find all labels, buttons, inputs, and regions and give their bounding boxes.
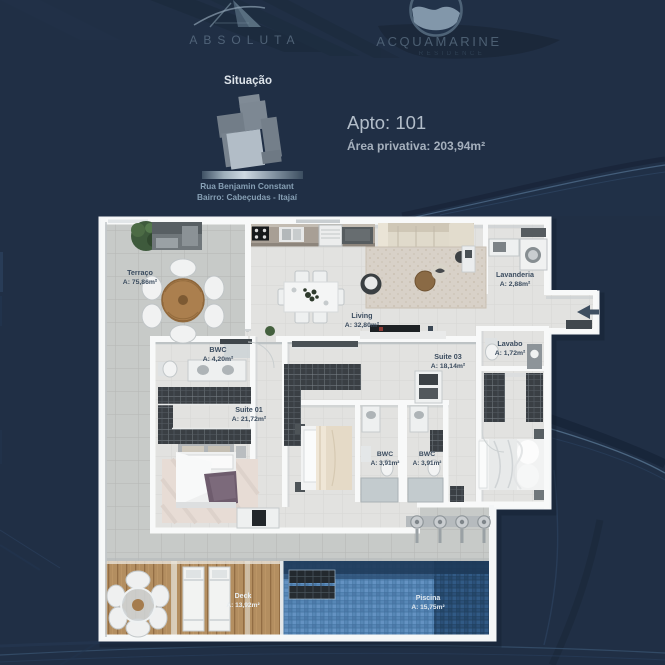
svg-text:A: 1,72m²: A: 1,72m²	[495, 350, 526, 357]
svg-text:Lavabo: Lavabo	[497, 339, 523, 348]
svg-text:Suite 01: Suite 01	[235, 405, 263, 414]
svg-text:Rua Benjamin Constant: Rua Benjamin Constant	[200, 181, 294, 191]
svg-text:Terraço: Terraço	[127, 268, 153, 277]
svg-text:A: 21,72m²: A: 21,72m²	[232, 416, 267, 423]
svg-text:Situação: Situação	[224, 75, 272, 87]
svg-text:RESIDENCE: RESIDENCE	[419, 51, 486, 57]
svg-text:Apto: 101: Apto: 101	[347, 112, 426, 133]
svg-text:A: 18,14m²: A: 18,14m²	[431, 363, 466, 370]
svg-text:Suite 03: Suite 03	[434, 352, 462, 361]
svg-text:ABSOLUTA: ABSOLUTA	[189, 33, 300, 47]
svg-text:Piscina: Piscina	[416, 595, 441, 602]
svg-text:ACQUAMARINE: ACQUAMARINE	[376, 34, 501, 49]
svg-text:Deck: Deck	[235, 593, 252, 600]
svg-text:Living: Living	[351, 311, 372, 320]
svg-text:Bairro: Cabeçudas - Itajaí: Bairro: Cabeçudas - Itajaí	[197, 192, 298, 202]
svg-text:BWC: BWC	[377, 451, 393, 458]
svg-text:A: 4,20m²: A: 4,20m²	[203, 356, 234, 363]
svg-text:Área privativa: 203,94m²: Área privativa: 203,94m²	[347, 138, 485, 153]
svg-text:A: 3,91m²: A: 3,91m²	[371, 460, 400, 467]
svg-text:A: 13,92m²: A: 13,92m²	[226, 602, 260, 609]
svg-text:Lavanderia: Lavanderia	[496, 270, 535, 279]
svg-text:A: 3,91m²: A: 3,91m²	[413, 460, 442, 467]
svg-text:BWC: BWC	[209, 345, 226, 354]
svg-text:A: 2,88m²: A: 2,88m²	[500, 281, 531, 288]
svg-text:BWC: BWC	[419, 451, 435, 458]
svg-text:A: 75,86m²: A: 75,86m²	[123, 279, 158, 286]
svg-text:A: 15,75m²: A: 15,75m²	[411, 604, 445, 611]
svg-text:A: 32,80m²: A: 32,80m²	[345, 322, 380, 329]
